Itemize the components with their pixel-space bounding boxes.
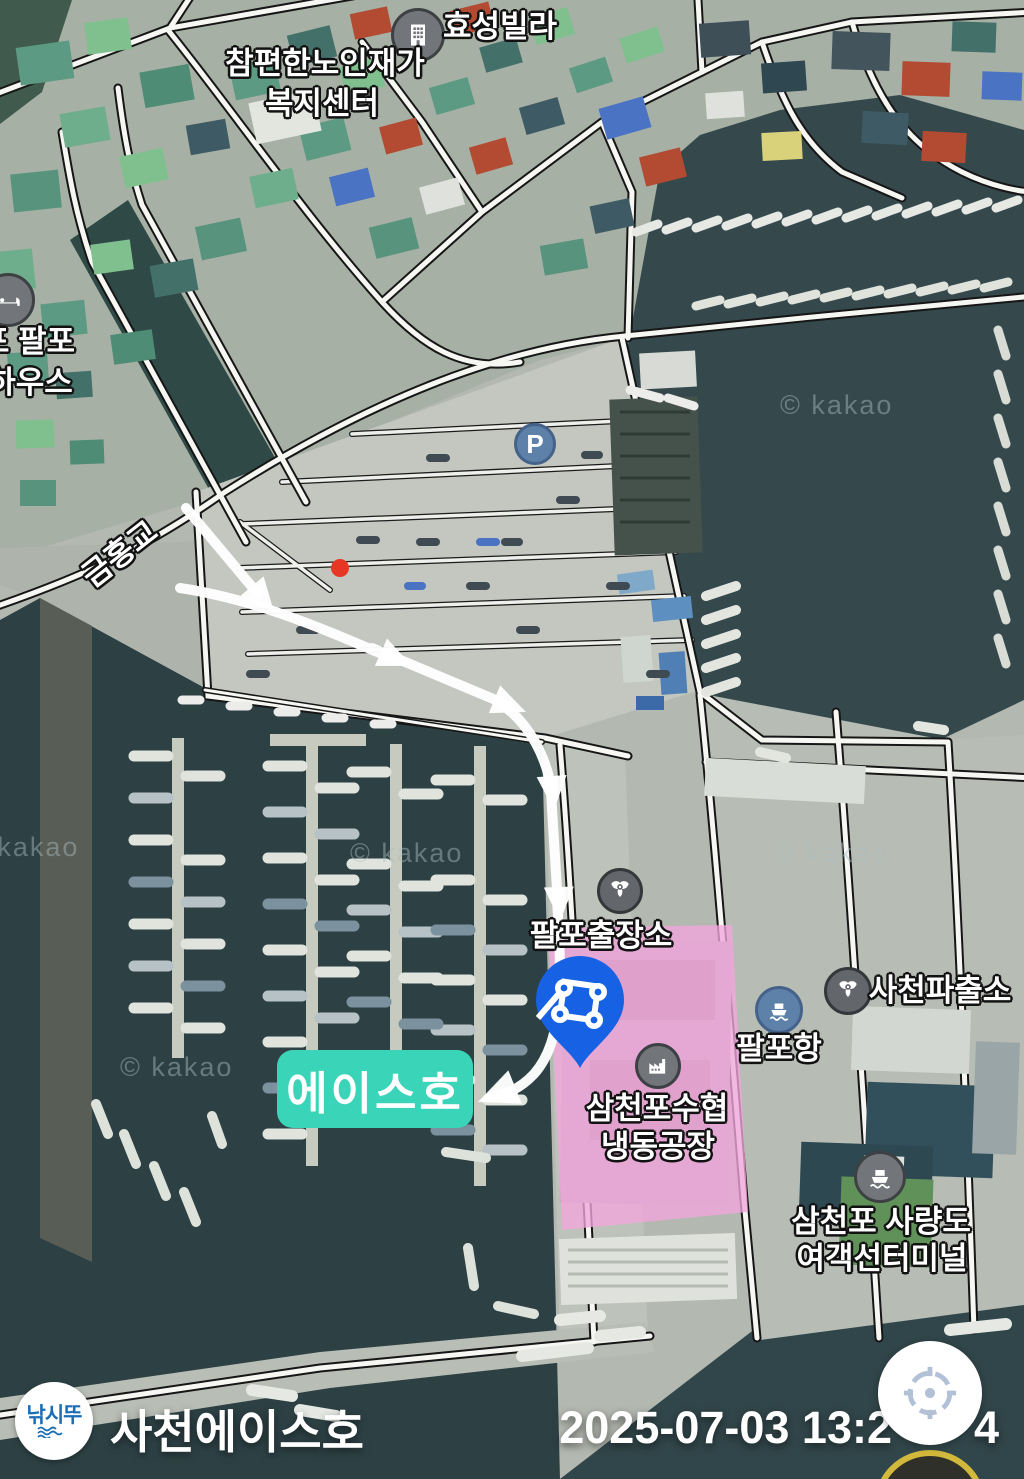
building-icon: [404, 21, 432, 49]
crosshair-icon: [901, 1364, 959, 1422]
current-location-button[interactable]: [878, 1341, 982, 1445]
ace-boat-label-text: 에이스호: [286, 1057, 464, 1122]
timestamp-start: 2025-07-03 13:2: [559, 1402, 892, 1454]
label-palpo-office: 팔포출장소: [530, 918, 673, 954]
port-poi-icon[interactable]: [755, 986, 803, 1034]
kakao-watermark: © kakao: [0, 832, 79, 863]
ace-boat-label: 에이스호: [277, 1050, 473, 1128]
parking-letter: P: [526, 431, 543, 457]
label-hyoseong-villa: 효성빌라: [443, 9, 557, 45]
page-title: 사천에이스호: [110, 1396, 364, 1462]
ferry-terminal-poi-icon[interactable]: [854, 1151, 906, 1203]
parking-poi-icon[interactable]: P: [514, 423, 556, 465]
label-welfare-center-line2: 복지센터: [265, 86, 379, 122]
label-guesthouse-line1: 포 팔포: [0, 324, 75, 360]
kakao-watermark: © kakao: [350, 838, 463, 869]
factory-icon: [645, 1053, 671, 1079]
ferry-icon: [866, 1163, 894, 1191]
location-pin-marker[interactable]: [532, 952, 628, 1072]
kakao-watermark: © kakao: [120, 1052, 233, 1083]
factory-poi-icon[interactable]: [635, 1043, 681, 1089]
label-fisheries-line1: 삼천포수협: [586, 1091, 729, 1127]
label-sacheon-police: 사천파출소: [869, 973, 1012, 1009]
bed-icon: [0, 286, 22, 314]
kakao-watermark: © kakao: [780, 390, 893, 421]
label-terminal-line2: 여객선터미널: [796, 1241, 967, 1277]
kakao-watermark: © kakao: [775, 838, 888, 869]
police-office-poi-icon[interactable]: [597, 868, 643, 914]
logo-text: 낚시뚜: [27, 1405, 82, 1426]
breakwater: [40, 598, 92, 1262]
label-guesthouse-line2: 하우스: [0, 365, 73, 401]
fishing-app-logo: 낚시뚜: [15, 1382, 93, 1460]
police-badge-icon: [607, 878, 633, 904]
label-terminal-line1: 삼천포 사량도: [791, 1204, 971, 1240]
red-dot-marker: [331, 559, 349, 577]
police-badge-icon: [835, 978, 861, 1004]
label-welfare-center-line1: 참편한노인재가: [225, 46, 425, 82]
waves-icon: [36, 1426, 72, 1438]
map-screenshot: © kakao © kakao © kakao © kakao © kakao …: [0, 0, 1024, 1479]
label-palpo-port: 팔포항: [736, 1031, 822, 1067]
police-station-poi-icon[interactable]: [824, 967, 872, 1015]
label-fisheries-line2: 냉동공장: [601, 1129, 715, 1165]
ferry-icon: [766, 997, 792, 1023]
